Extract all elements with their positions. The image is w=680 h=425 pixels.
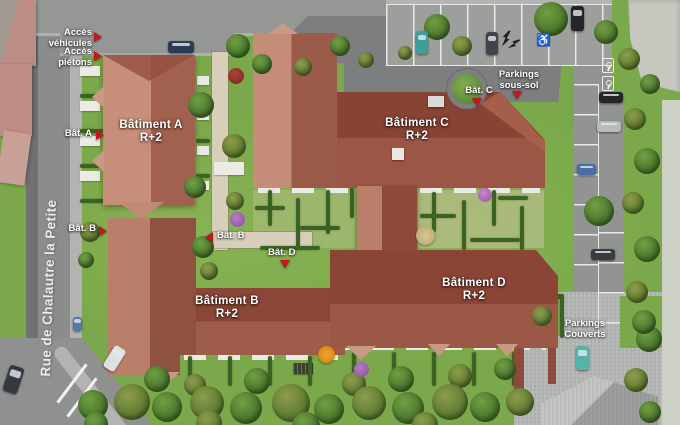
orange-parasol bbox=[318, 346, 335, 363]
purple-bush bbox=[354, 362, 369, 377]
building-b-label: Bâtiment BR+2 bbox=[182, 295, 272, 321]
tree bbox=[144, 366, 170, 392]
tree bbox=[626, 281, 648, 303]
tree bbox=[618, 48, 640, 70]
bat-b-inner-arrow-icon bbox=[205, 232, 213, 242]
tree bbox=[226, 34, 250, 58]
tree bbox=[188, 92, 214, 118]
building-d-label: Bâtiment DR+2 bbox=[429, 277, 519, 303]
tree bbox=[412, 412, 438, 425]
tree bbox=[294, 58, 312, 76]
hedge bbox=[462, 200, 466, 250]
hedge bbox=[472, 352, 476, 386]
purple-bush bbox=[478, 188, 492, 202]
tree bbox=[594, 20, 618, 44]
tree bbox=[388, 366, 414, 392]
acces-pietons-label: Accèspiétons bbox=[40, 47, 92, 68]
tree bbox=[222, 134, 246, 158]
bat-c-arrow-icon bbox=[472, 98, 482, 106]
tree bbox=[634, 236, 660, 262]
tree bbox=[78, 252, 94, 268]
neighbor-building bbox=[0, 0, 36, 66]
hedge bbox=[255, 206, 285, 210]
tree bbox=[624, 368, 648, 392]
hedge bbox=[470, 238, 520, 242]
car bbox=[73, 317, 82, 331]
bat-a-arrow-icon bbox=[96, 130, 104, 140]
tree bbox=[634, 148, 660, 174]
bench-area bbox=[214, 162, 244, 175]
connector-wing-roof bbox=[357, 186, 417, 252]
hedge bbox=[432, 192, 436, 232]
bat-a-callout: Bât. A bbox=[56, 129, 92, 140]
terrace bbox=[80, 171, 100, 181]
building-a-gable bbox=[92, 150, 104, 172]
hedge bbox=[492, 190, 496, 226]
tree bbox=[200, 262, 218, 280]
bat-b-street-callout: Bât. B bbox=[60, 224, 96, 235]
car bbox=[597, 121, 621, 132]
tree bbox=[432, 384, 468, 420]
hedge bbox=[498, 196, 528, 200]
wheelchair-icon: ♿ bbox=[536, 33, 551, 47]
tree bbox=[494, 358, 516, 380]
tree bbox=[244, 368, 270, 394]
parkings-sous-sol-arrow-icon bbox=[512, 91, 522, 99]
tree bbox=[230, 392, 262, 424]
tree bbox=[632, 310, 656, 334]
tree bbox=[352, 386, 386, 420]
car bbox=[486, 32, 498, 55]
building-d-gable bbox=[346, 346, 376, 360]
bat-d-inner-callout: Bât. D bbox=[268, 248, 295, 259]
tree bbox=[452, 36, 472, 56]
neighbor-building bbox=[0, 64, 32, 136]
tree bbox=[640, 74, 660, 94]
hedge bbox=[520, 206, 524, 250]
terrace bbox=[80, 101, 100, 111]
car bbox=[576, 346, 589, 370]
bat-b-inner-callout: Bât. B bbox=[217, 231, 244, 242]
tree bbox=[622, 192, 644, 214]
tree bbox=[114, 384, 150, 420]
hedge bbox=[296, 198, 300, 250]
tree bbox=[226, 192, 244, 210]
tree bbox=[358, 52, 374, 68]
car bbox=[577, 164, 596, 175]
terrace bbox=[197, 146, 209, 155]
car bbox=[168, 41, 194, 53]
tree bbox=[639, 401, 661, 423]
parkings-sous-sol-label: Parkingssous-sol bbox=[484, 70, 554, 91]
tree bbox=[152, 392, 182, 422]
motorcycle-parking-icon bbox=[602, 58, 614, 73]
site-plan: ♿ Accèsvéhicules Accèspiétons Bât. A Bât… bbox=[0, 0, 680, 425]
hedge bbox=[228, 356, 232, 386]
acces-pietons-arrow-icon bbox=[94, 51, 102, 61]
tree bbox=[534, 2, 568, 36]
tree bbox=[252, 54, 272, 74]
car bbox=[591, 249, 615, 260]
terrace bbox=[197, 76, 209, 85]
hedge bbox=[350, 188, 354, 218]
tree bbox=[330, 36, 350, 56]
purple-bush bbox=[230, 212, 245, 227]
car bbox=[599, 92, 623, 103]
rooftop-structure bbox=[392, 148, 404, 160]
hedge bbox=[196, 139, 210, 143]
tree bbox=[184, 176, 206, 198]
hedge bbox=[432, 352, 436, 386]
beige-parasol bbox=[416, 226, 435, 245]
hedge bbox=[308, 356, 312, 386]
car bbox=[571, 6, 584, 31]
hedge bbox=[80, 199, 104, 203]
building-a-label: Bâtiment AR+2 bbox=[106, 119, 196, 145]
red-bush bbox=[228, 68, 244, 84]
tree bbox=[584, 196, 614, 226]
parkings-couverts-label: ParkingsCouverts bbox=[549, 319, 621, 340]
motorcycle-parking-icon bbox=[602, 76, 614, 91]
bat-b-street-arrow-icon bbox=[99, 226, 107, 236]
acces-vehicules-arrow-icon bbox=[94, 32, 102, 42]
building-a-gable bbox=[118, 202, 164, 219]
bat-d-inner-arrow-icon bbox=[280, 260, 290, 268]
tree bbox=[624, 108, 646, 130]
rooftop-structure bbox=[428, 96, 444, 107]
hedge bbox=[420, 214, 456, 218]
building-c-label: Bâtiment CR+2 bbox=[372, 117, 462, 143]
hedge bbox=[300, 226, 340, 230]
car bbox=[416, 31, 428, 54]
tree bbox=[506, 388, 534, 416]
tree bbox=[398, 46, 412, 60]
tree bbox=[470, 392, 500, 422]
